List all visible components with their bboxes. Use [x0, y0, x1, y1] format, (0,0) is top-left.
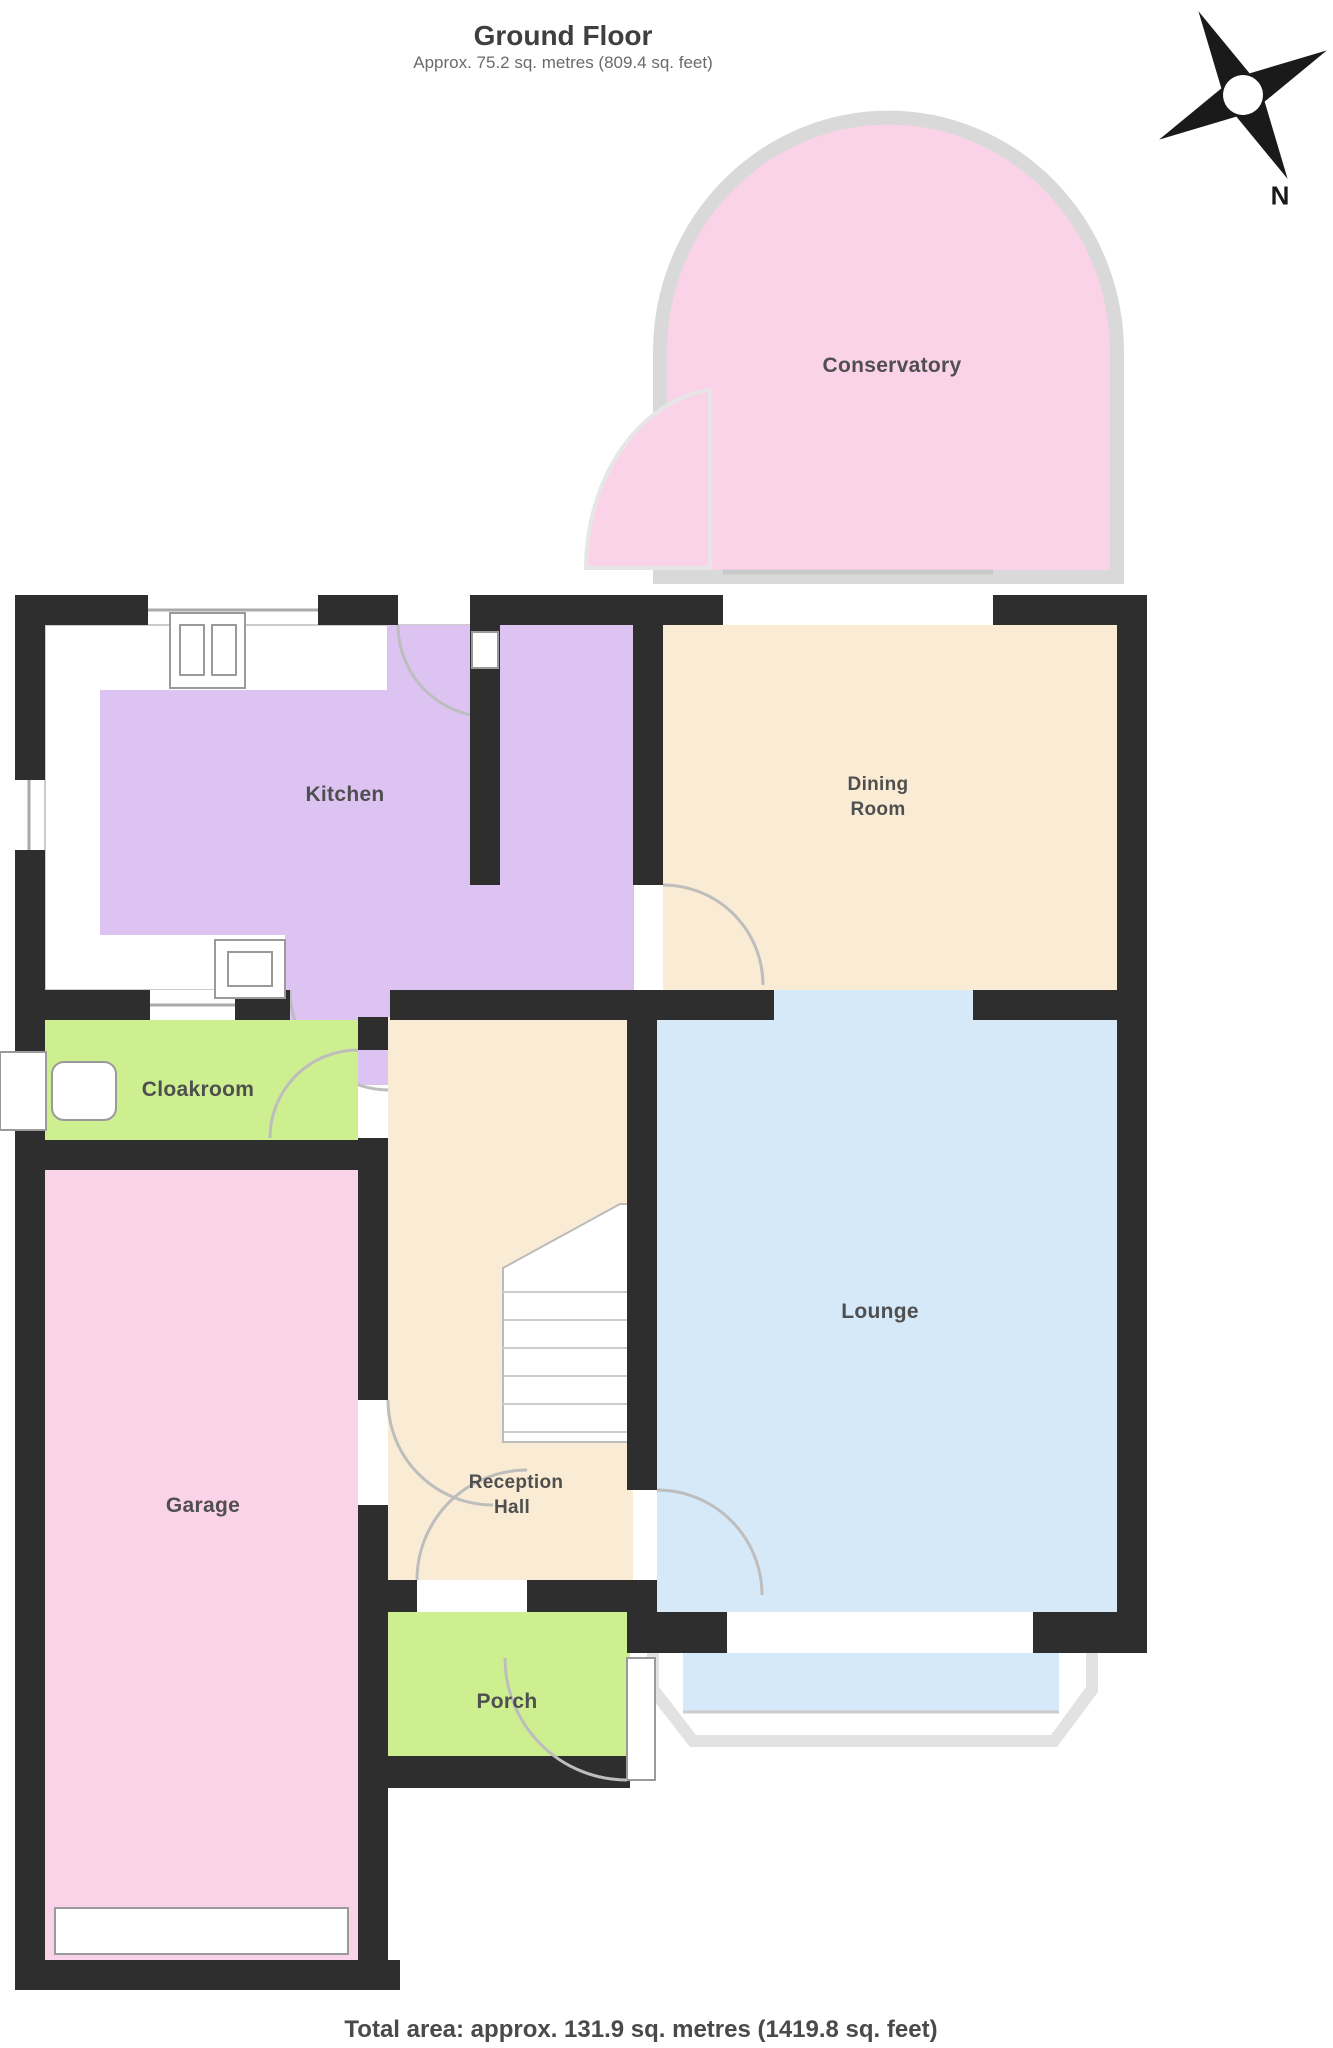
compass-rose [1115, 0, 1333, 223]
wall-segment [358, 1138, 388, 1400]
kitchen-passage [500, 625, 633, 990]
wall-segment [627, 1020, 657, 1490]
wall-segment [358, 1017, 388, 1050]
wall-segment [1117, 595, 1147, 1653]
wall-segment [318, 595, 398, 625]
wall-segment [358, 1505, 388, 1990]
garage-room [45, 1170, 358, 1960]
room-label-porch: Porch [476, 1690, 537, 1714]
room-label-hall-line1: Reception [469, 1472, 564, 1494]
room-label-kitchen: Kitchen [305, 783, 384, 807]
room-label-conservatory: Conservatory [823, 354, 962, 378]
wall-segment [15, 850, 45, 1990]
wall-segment [490, 595, 723, 625]
conservatory-room [660, 118, 1117, 577]
page-subtitle: Approx. 75.2 sq. metres (809.4 sq. feet) [413, 53, 713, 73]
porch-front-door [627, 1658, 655, 1780]
room-label-dining-line2: Room [850, 799, 905, 821]
room-label-garage: Garage [166, 1494, 240, 1518]
garage-door [55, 1908, 348, 1954]
wall-segment [15, 1140, 388, 1170]
wall-segment [633, 595, 663, 885]
conservatory-door-swing [586, 390, 710, 568]
floorplan-page: Ground Floor Approx. 75.2 sq. metres (80… [0, 0, 1333, 2048]
lounge-dining-opening [774, 990, 973, 1020]
cloakroom-window-bay [0, 1052, 46, 1130]
wall-segment [627, 1612, 727, 1653]
room-label-cloakroom: Cloakroom [142, 1078, 254, 1102]
page-title: Ground Floor [474, 20, 653, 52]
wall-segment [627, 1585, 657, 1615]
bay-window [647, 1653, 1098, 1747]
wall-segment [390, 990, 774, 1020]
wall-segment [15, 595, 45, 780]
room-label-lounge: Lounge [841, 1300, 919, 1324]
cloakroom-basin [52, 1062, 116, 1120]
wall-segment [358, 1756, 630, 1788]
room-label-hall-line2: Hall [494, 1497, 530, 1519]
compass-north-label: N [1271, 181, 1290, 212]
boiler-unit [472, 632, 498, 668]
kitchen-sink [170, 613, 245, 688]
wall-segment [15, 1960, 400, 1990]
room-label-dining-line1: Dining [848, 774, 909, 796]
floorplan-drawing [0, 0, 1333, 2048]
kitchen-floor-main [100, 690, 500, 935]
total-area-text: Total area: approx. 131.9 sq. metres (14… [344, 2016, 937, 2044]
kitchen-floor-bottom [285, 935, 500, 990]
kitchen-hob [215, 940, 285, 998]
